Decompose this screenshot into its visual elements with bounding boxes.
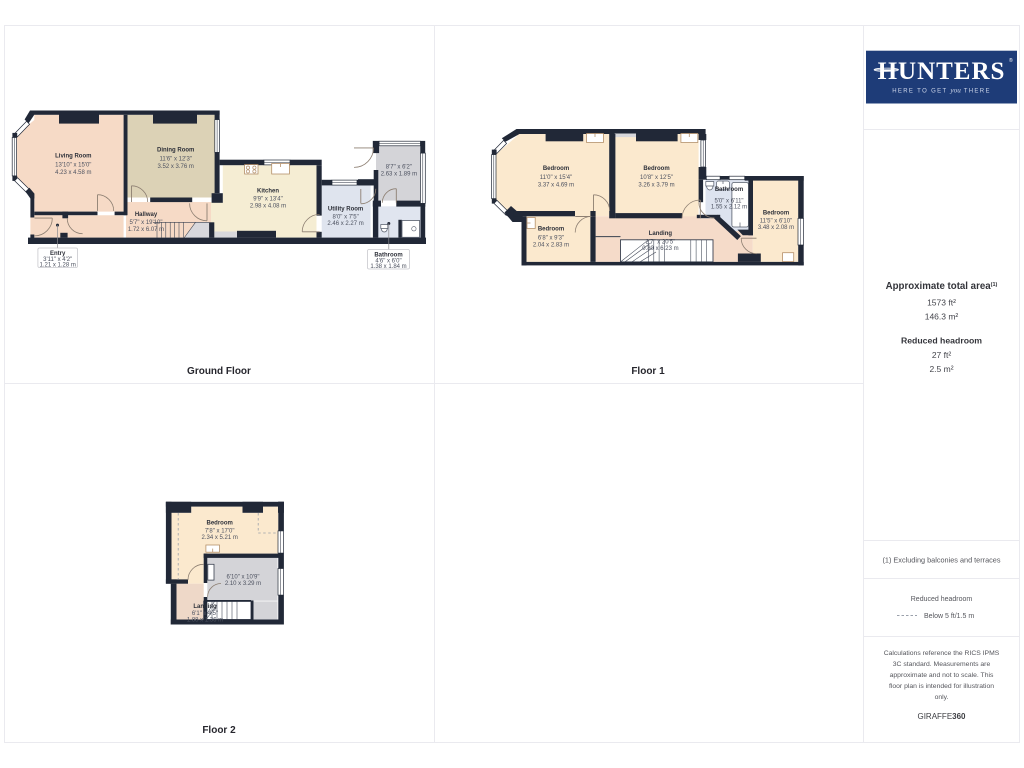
- svg-text:Landing: Landing: [649, 231, 673, 237]
- svg-text:3.52 x 3.76 m: 3.52 x 3.76 m: [158, 164, 194, 170]
- svg-text:1.72 x 6.07 m: 1.72 x 6.07 m: [128, 227, 164, 233]
- svg-text:Living Room: Living Room: [55, 154, 91, 160]
- svg-text:®: ®: [1009, 57, 1013, 64]
- svg-text:6'8" x 9'3": 6'8" x 9'3": [538, 235, 564, 241]
- svg-text:Bedroom: Bedroom: [643, 166, 669, 172]
- svg-text:1573 ft²: 1573 ft²: [927, 298, 956, 308]
- svg-text:Dining Room: Dining Room: [157, 148, 194, 154]
- svg-text:2.04 x 2.83 m: 2.04 x 2.83 m: [533, 242, 569, 248]
- svg-text:Bedroom: Bedroom: [763, 210, 789, 216]
- svg-text:Reduced headroom: Reduced headroom: [901, 336, 982, 346]
- svg-text:1.88 x 1.36 m: 1.88 x 1.36 m: [187, 618, 223, 624]
- svg-text:6'10" x 10'9": 6'10" x 10'9": [227, 574, 260, 580]
- svg-text:Bedroom: Bedroom: [207, 521, 233, 527]
- svg-text:3.37 x 4.69 m: 3.37 x 4.69 m: [538, 182, 574, 188]
- svg-text:8'0" x 7'5": 8'0" x 7'5": [332, 214, 358, 220]
- svg-text:Hallway: Hallway: [135, 212, 158, 218]
- svg-text:HUNTERS: HUNTERS: [878, 58, 1006, 85]
- svg-text:Approximate total area(1): Approximate total area(1): [886, 281, 998, 292]
- svg-text:Bathroom: Bathroom: [374, 252, 402, 258]
- svg-text:5'7" x 19'10": 5'7" x 19'10": [130, 220, 163, 226]
- svg-text:Bedroom: Bedroom: [538, 227, 564, 233]
- svg-text:only.: only.: [935, 694, 949, 701]
- svg-text:2.98 x 4.08 m: 2.98 x 4.08 m: [250, 204, 286, 210]
- svg-text:(1) Excluding balconies and te: (1) Excluding balconies and terraces: [882, 556, 1000, 565]
- svg-text:Floor 2: Floor 2: [202, 725, 236, 736]
- svg-text:4.23 x 4.58 m: 4.23 x 4.58 m: [55, 170, 91, 176]
- svg-text:11'6" x 12'3": 11'6" x 12'3": [159, 157, 191, 163]
- svg-text:10'8" x 12'5": 10'8" x 12'5": [640, 175, 673, 181]
- svg-text:0.80 x 6.23 m: 0.80 x 6.23 m: [642, 246, 678, 252]
- svg-text:Landing: Landing: [193, 604, 217, 610]
- svg-text:Floor 1: Floor 1: [631, 366, 665, 377]
- svg-text:floor plan is intended for ill: floor plan is intended for illustration: [889, 683, 994, 690]
- svg-text:Below 5 ft/1.5 m: Below 5 ft/1.5 m: [924, 613, 974, 620]
- svg-text:2'7" x 20'5": 2'7" x 20'5": [646, 239, 676, 245]
- svg-text:8'7" x 6'2": 8'7" x 6'2": [386, 165, 412, 171]
- svg-text:2.63 x 1.89 m: 2.63 x 1.89 m: [381, 171, 417, 177]
- svg-text:1.21 x 1.28 m: 1.21 x 1.28 m: [40, 263, 76, 269]
- svg-text:1.38 x 1.84 m: 1.38 x 1.84 m: [370, 264, 406, 270]
- svg-text:2.34 x 5.21 m: 2.34 x 5.21 m: [202, 535, 238, 541]
- svg-text:13'10" x 15'0": 13'10" x 15'0": [55, 163, 91, 169]
- svg-text:11'0" x 15'4": 11'0" x 15'4": [540, 175, 572, 181]
- svg-text:3.26 x 3.79 m: 3.26 x 3.79 m: [638, 182, 674, 188]
- svg-text:Utility Room: Utility Room: [328, 206, 363, 212]
- svg-text:HERE TO GET you THERE: HERE TO GET you THERE: [892, 86, 991, 94]
- svg-text:Entry: Entry: [50, 251, 66, 257]
- svg-text:2.46 x 2.27 m: 2.46 x 2.27 m: [327, 221, 363, 227]
- svg-text:9'9" x 13'4": 9'9" x 13'4": [253, 196, 283, 202]
- svg-text:3.48 x 2.08 m: 3.48 x 2.08 m: [758, 225, 794, 231]
- svg-text:2.5 m²: 2.5 m²: [929, 364, 953, 374]
- svg-text:7'8" x 17'0": 7'8" x 17'0": [205, 528, 235, 534]
- svg-text:2.10 x 3.29 m: 2.10 x 3.29 m: [225, 581, 261, 587]
- svg-text:146.3 m²: 146.3 m²: [925, 312, 959, 322]
- svg-text:Reduced headroom: Reduced headroom: [911, 596, 973, 603]
- svg-text:Ground Floor: Ground Floor: [187, 366, 251, 377]
- svg-text:6'1" x 4'5": 6'1" x 4'5": [192, 611, 218, 617]
- svg-text:GIRAFFE360: GIRAFFE360: [917, 712, 966, 721]
- svg-text:5'0" x 6'11": 5'0" x 6'11": [714, 198, 743, 204]
- svg-text:Kitchen: Kitchen: [257, 188, 279, 194]
- svg-text:Bedroom: Bedroom: [543, 166, 569, 172]
- svg-text:approximate and not to scale.: approximate and not to scale. This: [890, 672, 994, 679]
- svg-text:3C standard. Measurements are: 3C standard. Measurements are: [893, 661, 991, 668]
- svg-text:Bathroom: Bathroom: [715, 187, 743, 193]
- svg-text:1.55 x 2.12 m: 1.55 x 2.12 m: [711, 205, 747, 211]
- svg-text:Calculations reference the RIC: Calculations reference the RICS IPMS: [884, 650, 1000, 657]
- svg-text:11'5" x 6'10": 11'5" x 6'10": [760, 218, 792, 224]
- svg-text:27 ft²: 27 ft²: [932, 350, 952, 360]
